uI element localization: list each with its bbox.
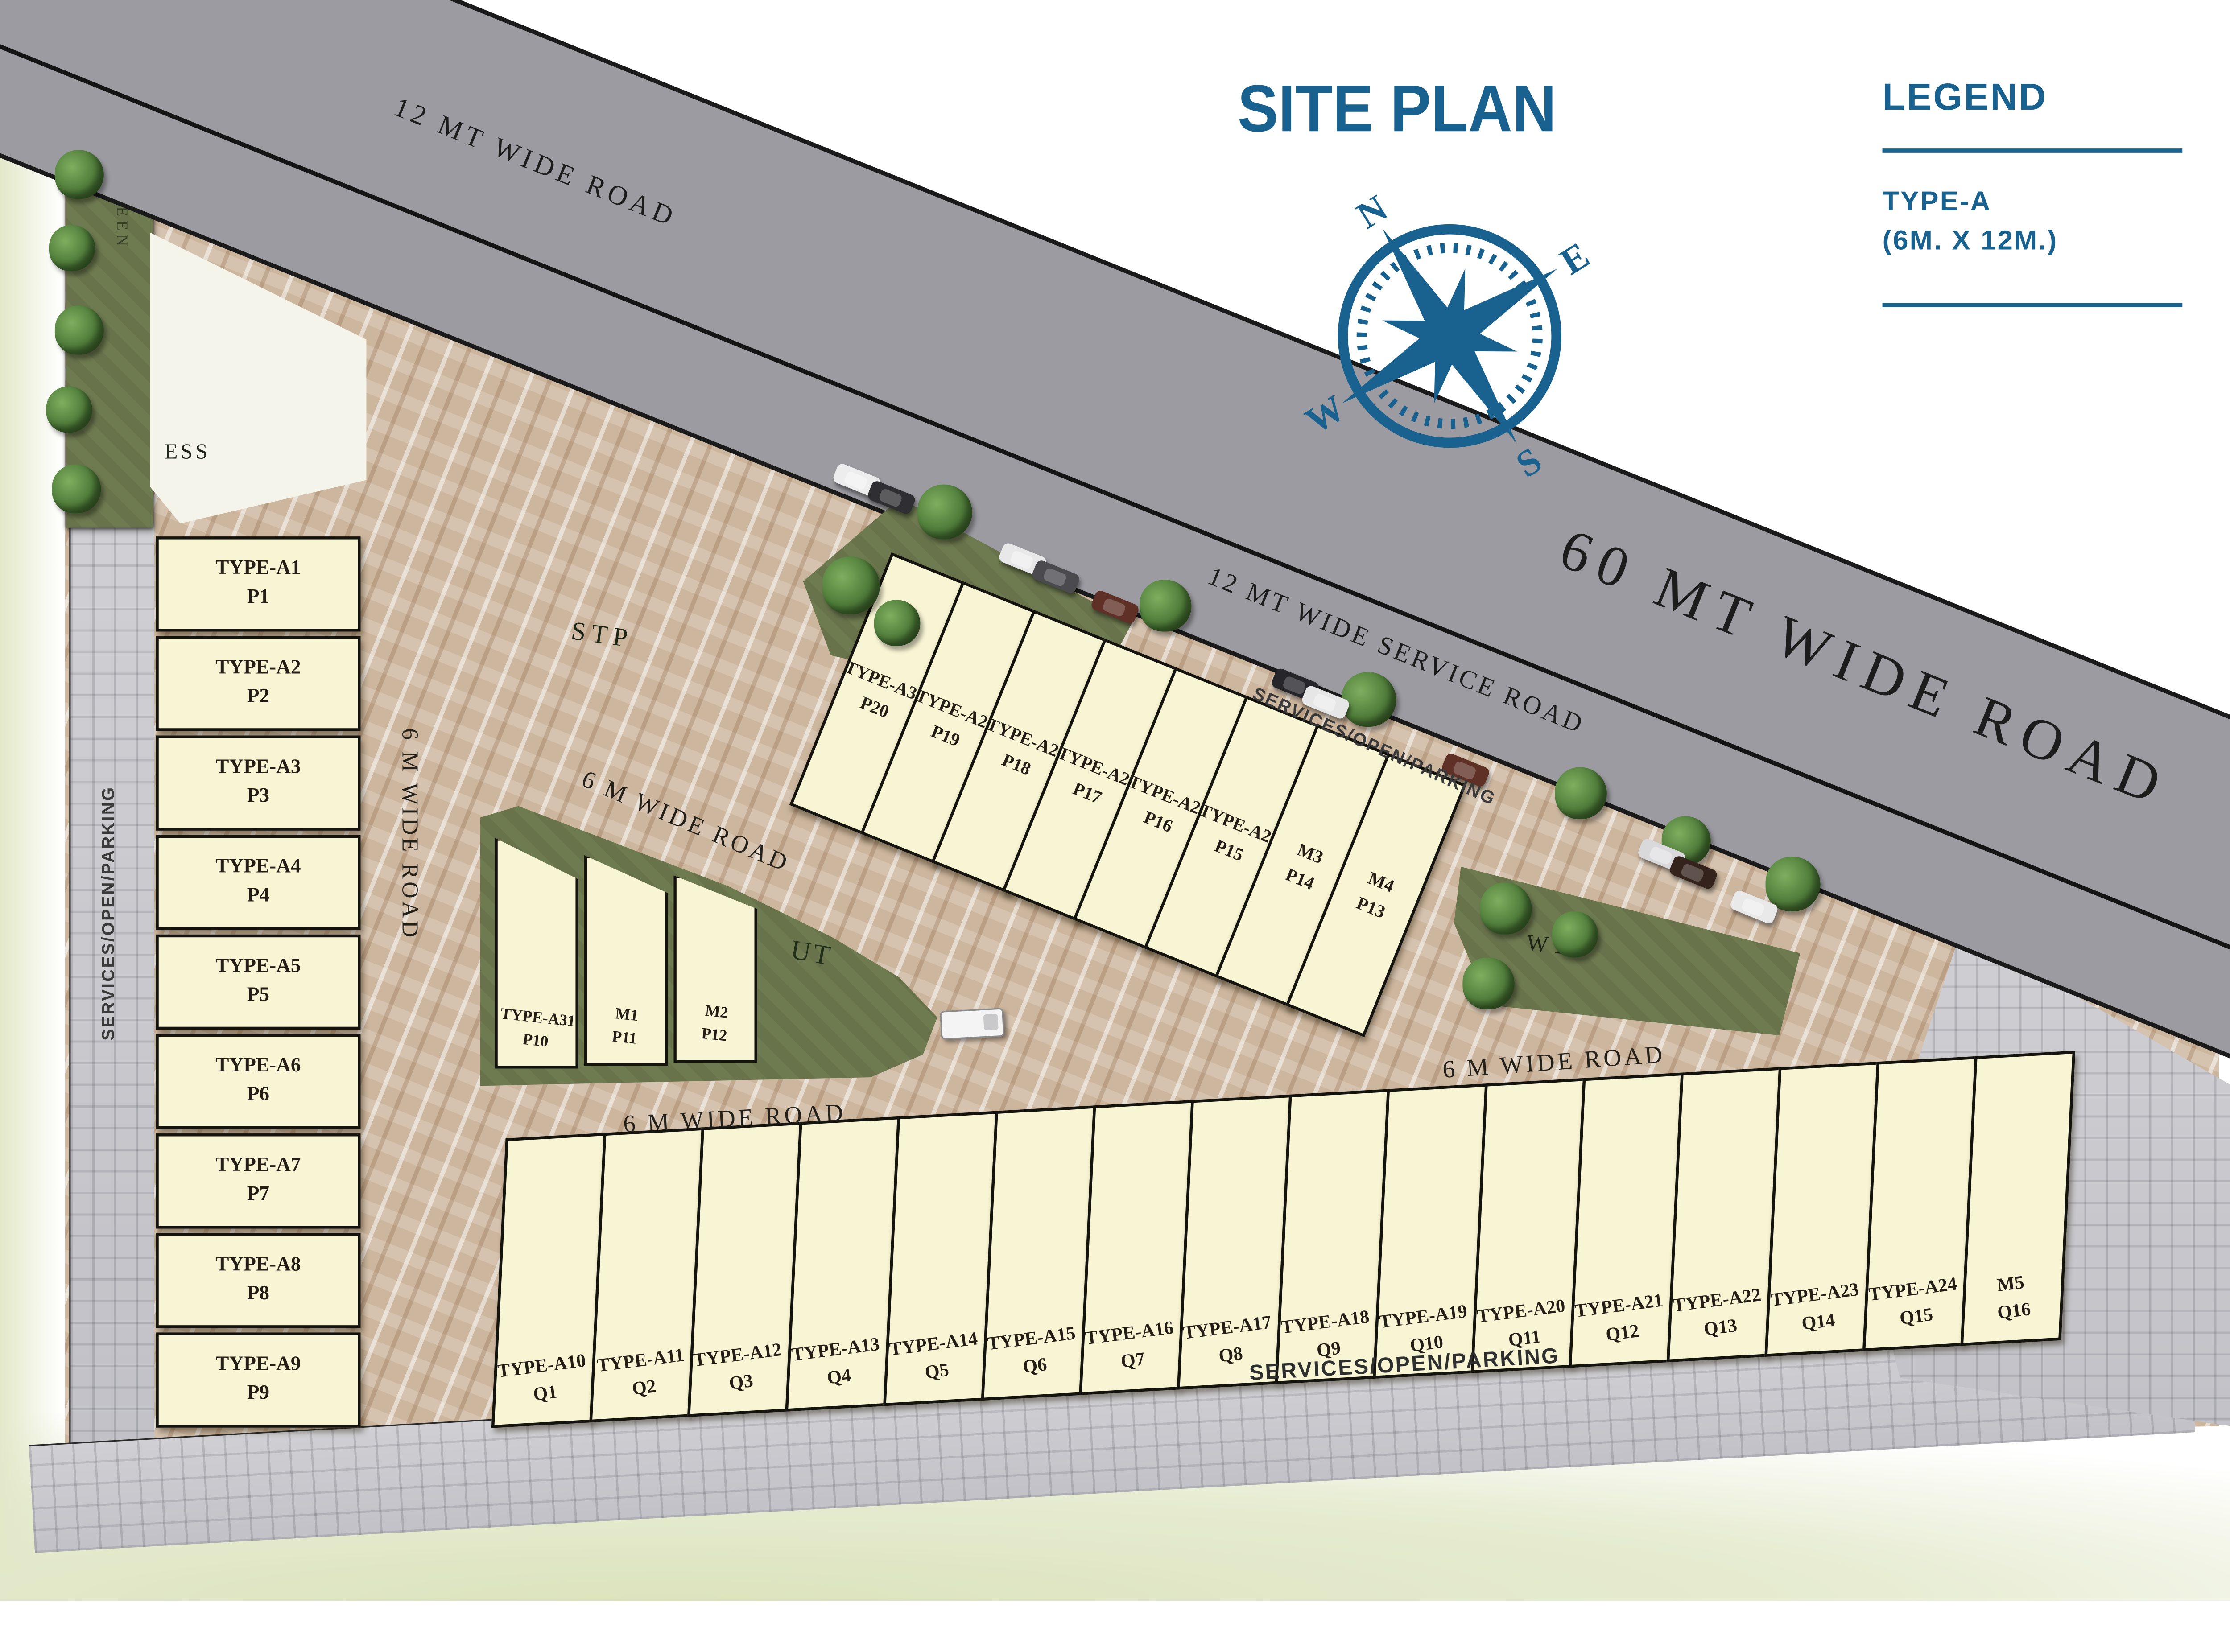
tree-icon xyxy=(1766,857,1821,911)
ut-label: UT xyxy=(788,935,835,974)
road-label-60mt: 60 MT WIDE ROAD xyxy=(1551,515,2180,821)
tree-icon xyxy=(49,225,95,271)
site-plan-canvas: GREEN ESS 12 MT WIDE ROAD 60 MT WIDE ROA… xyxy=(0,0,2230,1601)
tree-icon xyxy=(55,306,104,355)
plot-Q10: TYPE-A19Q10 xyxy=(1373,1083,1488,1379)
tree-icon xyxy=(46,387,92,433)
tree-icon xyxy=(1342,672,1396,727)
plot-Q2: TYPE-A11Q2 xyxy=(589,1127,704,1422)
plot-Q6: TYPE-A15Q6 xyxy=(981,1105,1096,1401)
plot-Q7: TYPE-A16Q7 xyxy=(1079,1100,1194,1395)
plot-P8: TYPE-A8P8 xyxy=(156,1233,360,1328)
road-label-12mt: 12 MT WIDE ROAD xyxy=(389,92,681,235)
plot-Q8: TYPE-A17Q8 xyxy=(1177,1095,1292,1390)
legend-heading: LEGEND xyxy=(1883,75,2048,119)
plot-P12: M2P12 xyxy=(673,875,757,1063)
tree-icon xyxy=(1140,580,1191,631)
plot-P11: M1P11 xyxy=(584,855,668,1066)
plot-P2: TYPE-A2P2 xyxy=(156,636,360,731)
plot-P7: TYPE-A7P7 xyxy=(156,1133,360,1228)
plot-Q15: TYPE-A24Q15 xyxy=(1862,1056,1978,1351)
plot-P5: TYPE-A5P5 xyxy=(156,935,360,1030)
plot-Q9: TYPE-A18Q9 xyxy=(1275,1089,1390,1384)
compass-e-label: E xyxy=(1553,235,1597,283)
legend-item-type: TYPE-A xyxy=(1883,187,1992,219)
tree-icon xyxy=(1552,911,1598,957)
plot-Q4: TYPE-A13Q4 xyxy=(785,1116,900,1412)
tree-icon xyxy=(1480,882,1532,934)
tree-icon xyxy=(822,556,880,614)
legend-rule-top xyxy=(1883,148,2183,153)
plot-P4: TYPE-A4P4 xyxy=(156,835,360,930)
tree-icon xyxy=(917,485,972,540)
plot-Q14: TYPE-A23Q14 xyxy=(1764,1062,1879,1357)
road-label-6m-vertical: 6 M WIDE ROAD xyxy=(395,728,421,940)
truck-icon xyxy=(940,1008,1004,1040)
plot-Q11: TYPE-A20Q11 xyxy=(1471,1078,1586,1373)
legend-item-size: (6M. X 12M.) xyxy=(1883,227,2058,258)
plot-P6: TYPE-A6P6 xyxy=(156,1034,360,1129)
tree-icon xyxy=(55,150,104,199)
plot-Q1: TYPE-A10Q1 xyxy=(491,1133,607,1428)
plot-P9: TYPE-A9P9 xyxy=(156,1332,360,1427)
tree-icon xyxy=(52,464,101,513)
landscape-wash-left xyxy=(0,58,69,1572)
services-label-left: SERVICES/OPEN/PARKING xyxy=(98,786,118,1041)
tree-icon xyxy=(1462,957,1514,1009)
plot-Q13: TYPE-A22Q13 xyxy=(1667,1067,1782,1362)
plot-P3: TYPE-A3P3 xyxy=(156,735,360,830)
plot-Q3: TYPE-A12Q3 xyxy=(687,1122,802,1417)
tree-icon xyxy=(874,600,920,646)
ess-label: ESS xyxy=(165,441,211,466)
legend-rule-bottom xyxy=(1883,303,2183,307)
compass-n-label: N xyxy=(1350,187,1395,237)
plot-Q12: TYPE-A21Q12 xyxy=(1569,1072,1684,1368)
plot-Q5: TYPE-A14Q5 xyxy=(883,1111,998,1406)
tree-icon xyxy=(1555,767,1606,819)
plot-P10: TYPE-A31P10 xyxy=(495,838,578,1068)
plot-P1: TYPE-A1P1 xyxy=(156,536,360,631)
plot-Q16: M5Q16 xyxy=(1960,1051,2075,1346)
compass-star-diagonal xyxy=(1367,253,1532,419)
